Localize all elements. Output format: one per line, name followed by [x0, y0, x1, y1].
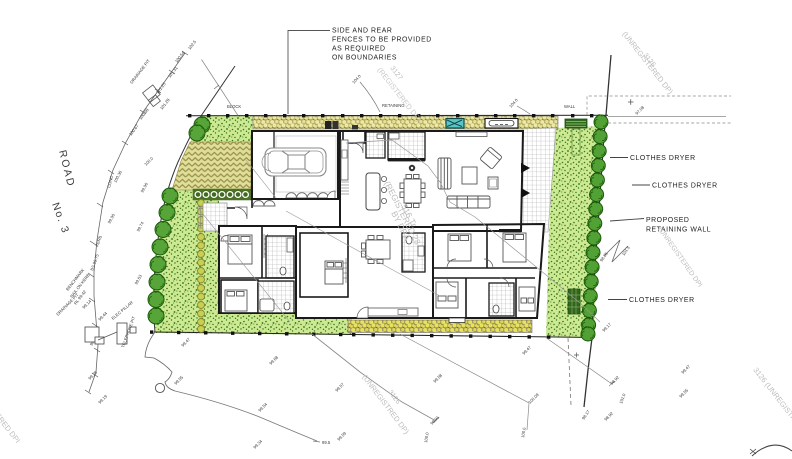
svg-text:PROPOSED: PROPOSED	[646, 217, 689, 224]
svg-text:ON BOUNDARIES: ON BOUNDARIES	[332, 55, 397, 62]
svg-text:BLOCK: BLOCK	[227, 104, 241, 109]
svg-text:RETAINING WALL: RETAINING WALL	[646, 227, 711, 234]
svg-text:99.5: 99.5	[322, 440, 331, 445]
svg-text:CLOTHES DRYER: CLOTHES DRYER	[652, 183, 718, 190]
svg-text:AS REQUIRED: AS REQUIRED	[332, 46, 386, 53]
svg-text:FENCES TO BE PROVIDED: FENCES TO BE PROVIDED	[332, 37, 432, 44]
svg-text:SIDE AND REAR: SIDE AND REAR	[332, 28, 392, 35]
svg-text:CLOTHES DRYER: CLOTHES DRYER	[629, 297, 695, 304]
svg-text:WALL: WALL	[564, 104, 576, 109]
svg-text:CLOTHES DRYER: CLOTHES DRYER	[630, 155, 696, 162]
